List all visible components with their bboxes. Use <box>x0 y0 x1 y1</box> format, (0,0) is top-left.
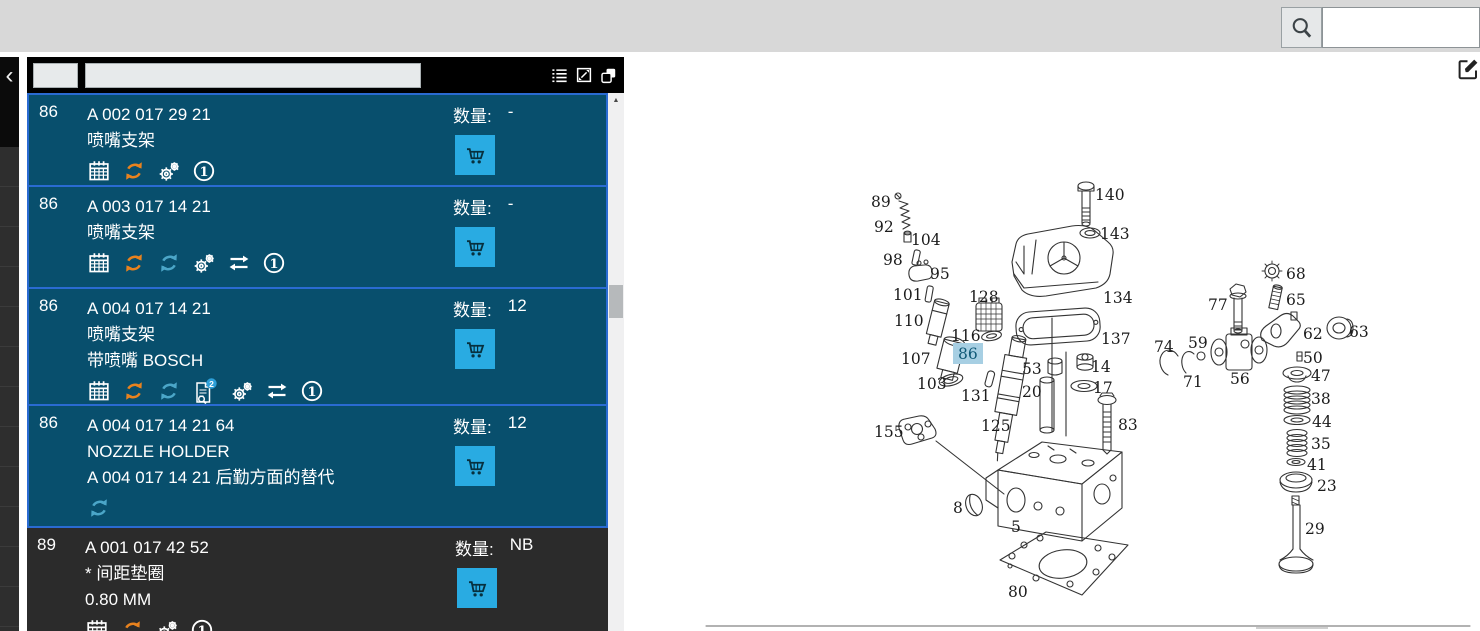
part-description: * 间距垫圈 <box>85 561 455 587</box>
quantity-label: 数量: <box>453 194 492 219</box>
quantity-label: 数量: <box>453 296 492 321</box>
diagram-part-label[interactable]: 17 <box>1093 379 1113 397</box>
diagram-part-label[interactable]: 56 <box>1230 370 1250 388</box>
part-number: A 004 017 14 21 64 <box>87 413 453 439</box>
diagram-part-label[interactable]: 89 <box>871 193 891 211</box>
diagram-part-label[interactable]: 103 <box>917 375 947 393</box>
part-position: 86 <box>29 95 87 185</box>
gears-icon[interactable] <box>230 379 254 403</box>
quantity-value: NB <box>510 535 534 560</box>
collapse-panel-button[interactable]: ‹ <box>0 57 19 147</box>
diagram-part-label[interactable]: 41 <box>1307 456 1327 474</box>
diagram-part-label[interactable]: 77 <box>1208 296 1228 314</box>
part-description: 喷嘴支架 <box>87 322 453 348</box>
diagram-part-label[interactable]: 98 <box>883 251 903 269</box>
diagram-part-label[interactable]: 14 <box>1091 358 1111 376</box>
diagram-part-label[interactable]: 140 <box>1095 186 1125 204</box>
top-toolbar <box>0 0 1480 52</box>
diagram-part-label[interactable]: 101 <box>893 286 923 304</box>
diagram-part-label[interactable]: 20 <box>1022 383 1042 401</box>
gears-icon[interactable] <box>157 159 181 183</box>
diagram-part-label[interactable]: 5 <box>1011 518 1021 536</box>
cart-icon <box>462 453 488 479</box>
diagram-part-label[interactable]: 155 <box>874 423 904 441</box>
diagram-part-label[interactable]: 47 <box>1311 367 1331 385</box>
refresh-orange-icon[interactable] <box>122 159 146 183</box>
diagram-part-label[interactable]: 137 <box>1101 330 1131 348</box>
position-filter-input[interactable] <box>33 63 78 88</box>
diagram-part-label[interactable]: 92 <box>874 218 894 236</box>
footnote-1-icon[interactable] <box>190 618 214 631</box>
table-row[interactable]: 86 A 002 017 29 21 喷嘴支架 数量:- <box>27 93 608 185</box>
footnote-1-icon[interactable] <box>192 159 216 183</box>
document-search-badge-icon[interactable]: 2 <box>192 378 219 405</box>
part-number: A 004 017 14 21 <box>87 296 453 322</box>
doc-badge-count: 2 <box>209 379 214 389</box>
swap-icon[interactable] <box>265 379 289 403</box>
diagram-part-label[interactable]: 62 <box>1303 325 1323 343</box>
diagram-part-label[interactable]: 80 <box>1008 583 1028 601</box>
cart-icon <box>462 234 488 260</box>
diagram-part-label[interactable]: 116 <box>951 327 981 345</box>
add-to-cart-button[interactable] <box>455 227 495 267</box>
refresh-orange-icon[interactable] <box>120 618 144 631</box>
cart-icon <box>464 575 490 601</box>
parts-list-header <box>27 57 624 93</box>
exploded-view-diagram: 8992104989510112811011686107103131155125… <box>624 57 1480 631</box>
part-description: 带喷嘴 BOSCH <box>87 348 453 374</box>
part-number: A 001 017 42 52 <box>85 535 455 561</box>
diagram-part-label[interactable]: 38 <box>1311 390 1331 408</box>
calendar-icon[interactable] <box>87 159 111 183</box>
diagram-part-label[interactable]: 131 <box>961 387 991 405</box>
diagram-part-label[interactable]: 65 <box>1286 291 1306 309</box>
parts-list-scrollbar[interactable]: ▲ <box>608 93 624 631</box>
quantity-value: 12 <box>508 413 527 438</box>
parts-rows: 86 A 002 017 29 21 喷嘴支架 数量:- 86 <box>27 93 608 631</box>
part-description: NOZZLE HOLDER <box>87 439 453 465</box>
part-position: 86 <box>29 187 87 287</box>
quantity-label: 数量: <box>453 413 492 438</box>
refresh-blue-icon[interactable] <box>87 496 111 520</box>
diagram-part-label[interactable]: 134 <box>1103 289 1133 307</box>
table-row[interactable]: 86 A 003 017 14 21 喷嘴支架 数量:- <box>27 185 608 287</box>
add-to-cart-button[interactable] <box>455 329 495 369</box>
diagram-part-label[interactable]: 29 <box>1305 520 1325 538</box>
cart-icon <box>462 336 488 362</box>
diagram-part-label[interactable]: 128 <box>969 288 999 306</box>
diagram-part-label[interactable]: 110 <box>894 312 924 330</box>
calendar-icon[interactable] <box>85 618 109 631</box>
diagram-part-label[interactable]: 63 <box>1349 323 1369 341</box>
quantity-value: - <box>508 102 514 127</box>
diagram-part-label[interactable]: 71 <box>1183 373 1203 391</box>
add-to-cart-button[interactable] <box>455 446 495 486</box>
swap-icon[interactable] <box>227 251 251 275</box>
part-description: 喷嘴支架 <box>87 220 453 246</box>
search-button[interactable] <box>1281 7 1322 48</box>
diagram-part-label[interactable]: 143 <box>1100 225 1130 243</box>
part-description: 0.80 MM <box>85 587 455 613</box>
expand-icon[interactable] <box>575 66 593 84</box>
parts-filter-input[interactable] <box>85 63 421 88</box>
calendar-icon[interactable] <box>87 379 111 403</box>
quantity-label: 数量: <box>453 102 492 127</box>
scroll-up-arrow[interactable]: ▲ <box>608 93 624 108</box>
diagram-part-label[interactable]: 68 <box>1286 265 1306 283</box>
list-view-icon[interactable] <box>550 66 569 85</box>
diagram-part-label[interactable]: 50 <box>1303 349 1323 367</box>
refresh-orange-icon[interactable] <box>122 379 146 403</box>
refresh-blue-icon[interactable] <box>157 251 181 275</box>
diagram-part-label[interactable]: 104 <box>911 231 941 249</box>
part-position: 89 <box>27 528 85 631</box>
part-position: 86 <box>29 289 87 404</box>
part-number: A 002 017 29 21 <box>87 102 453 128</box>
add-to-cart-button[interactable] <box>455 135 495 175</box>
diagram-part-label[interactable]: 59 <box>1188 334 1208 352</box>
add-to-cart-button[interactable] <box>457 568 497 608</box>
gears-icon[interactable] <box>155 618 179 631</box>
diagram-part-label[interactable]: 44 <box>1312 413 1332 431</box>
diagram-part-label[interactable]: 53 <box>1022 360 1042 378</box>
diagram-part-label[interactable]: 35 <box>1311 435 1331 453</box>
cart-icon <box>462 142 488 168</box>
diagram-part-label[interactable]: 74 <box>1154 338 1174 356</box>
diagram-part-label[interactable]: 83 <box>1118 416 1138 434</box>
diagram-part-label[interactable]: 95 <box>930 265 950 283</box>
footnote-1-icon[interactable] <box>300 379 324 403</box>
table-row[interactable]: 86 A 004 017 14 21 喷嘴支架 带喷嘴 BOSCH <box>27 287 608 404</box>
quantity-label: 数量: <box>455 535 494 560</box>
part-position: 86 <box>29 406 87 526</box>
refresh-blue-icon[interactable] <box>157 379 181 403</box>
part-number: A 003 017 14 21 <box>87 194 453 220</box>
refresh-orange-icon[interactable] <box>122 251 146 275</box>
gears-icon[interactable] <box>192 251 216 275</box>
scrollbar-thumb[interactable] <box>609 285 623 318</box>
calendar-icon[interactable] <box>87 251 111 275</box>
diagram-part-label[interactable]: 107 <box>901 350 931 368</box>
quantity-value: - <box>508 194 514 219</box>
table-row[interactable]: 86 A 004 017 14 21 64 NOZZLE HOLDER A 00… <box>27 404 608 528</box>
quantity-value: 12 <box>508 296 527 321</box>
table-row[interactable]: 89 A 001 017 42 52 * 间距垫圈 0.80 MM 数量:NB <box>27 528 608 631</box>
rail-collapsed-rows <box>0 147 19 631</box>
footnote-1-icon[interactable] <box>262 251 286 275</box>
exploded-view-drawing <box>706 182 1470 629</box>
part-description: A 004 017 14 21 后勤方面的替代 <box>87 465 453 491</box>
diagram-part-label[interactable]: 125 <box>981 417 1011 435</box>
diagram-part-label[interactable]: 23 <box>1317 477 1337 495</box>
diagram-part-label[interactable]: 86 <box>958 345 978 363</box>
diagram-part-label[interactable]: 8 <box>953 499 963 517</box>
parts-list-panel: 86 A 002 017 29 21 喷嘴支架 数量:- 86 <box>27 57 624 631</box>
left-rail: ‹ <box>0 57 19 631</box>
part-description: 喷嘴支架 <box>87 128 453 154</box>
search-icon <box>1288 14 1316 42</box>
search-input[interactable] <box>1322 7 1480 48</box>
copy-window-icon[interactable] <box>599 66 618 85</box>
